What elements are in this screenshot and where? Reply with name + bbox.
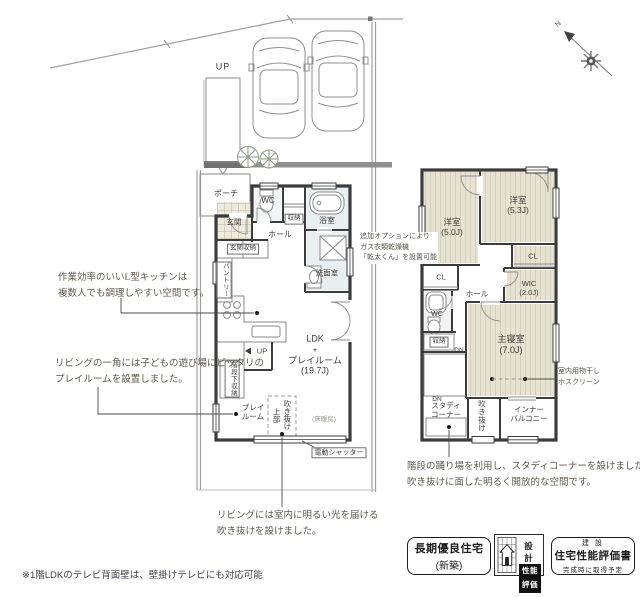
room-label-ldk: LDK + プレイルーム (19.7J)	[288, 333, 342, 376]
room-label-playroom: プレイ ルーム	[242, 403, 265, 421]
room-label-entrance: 玄関	[227, 218, 242, 227]
badge-design-eval-bottom: 性能評価	[519, 564, 541, 593]
room-label-stairs-up: UP	[257, 347, 267, 356]
badge-construction-line2: 住宅性能評価書	[555, 548, 632, 563]
room-label-wc-2f: WC	[431, 311, 443, 319]
room-label-hall-2f: ホール	[466, 290, 489, 299]
badge-design-evaluation: 設 計 性能評価	[494, 534, 544, 576]
room-label-void-upper: 吹き抜け 上部	[270, 400, 292, 430]
car-icon-2	[308, 31, 368, 131]
badge-construction-line1: 建 設	[582, 538, 604, 548]
room-label-cl2: CL	[528, 252, 538, 261]
stairs-2f	[424, 354, 466, 396]
tree-icon-2	[260, 150, 278, 168]
badge-design-eval-top: 設 計	[519, 537, 541, 564]
room-label-study-corner: スタディ コーナー	[431, 401, 461, 419]
washer-icon	[320, 236, 346, 260]
room-label-porch: ポーチ	[214, 189, 238, 199]
badge-long-term-line1: 長期優良住宅	[415, 540, 484, 556]
room-label-storage-2f: 収納	[430, 337, 449, 348]
badge-long-term-line2: (新築)	[436, 557, 463, 572]
note-hosclean: 室内用物干し ホスクリーン	[557, 367, 601, 388]
room-label-storage-1f: 収納	[285, 214, 304, 225]
car-icon-1	[249, 38, 309, 138]
bathtub-icon	[310, 192, 344, 214]
label-floor-heating: (床暖房)	[312, 416, 336, 424]
badge-construction-evaluation: 建 設 住宅性能評価書 完成時に取得予定	[551, 537, 635, 575]
room-label-hall-1f: ホール	[268, 230, 292, 240]
floorplan-page: UP N ポーチ 玄関 WC 収納 浴室 洗面室 ホール 玄関収納 パントリー …	[0, 0, 640, 597]
room-label-void-2f: 吹き抜け	[478, 400, 487, 432]
room-label-pantry: パントリー	[217, 262, 232, 299]
footnote-tv-wall: ※1階LDKのテレビ背面壁は、壁掛けテレビにも対応可能	[22, 567, 263, 581]
study-desk	[426, 418, 466, 436]
site-up-label: UP	[216, 62, 231, 73]
room-label-cl1: CL	[436, 273, 446, 282]
compass-icon	[564, 31, 612, 76]
note-kitchen: 作業効率のいいL型キッチンは 複数人でも調理しやすい空間です。	[58, 270, 209, 302]
room-label-inner-balcony: インナー バルコニー	[510, 405, 547, 423]
room-label-washroom: 洗面室	[316, 269, 339, 278]
room-label-bath: 浴室	[319, 216, 335, 226]
exterior-stairs	[206, 78, 240, 174]
note-void: リビングには室内に明るい光を届ける 吹き抜けを設けました。	[217, 508, 379, 540]
room-label-bedroom2: 洋室 (5.3J)	[507, 195, 529, 215]
badge-long-term-housing: 長期優良住宅 (新築)	[407, 537, 491, 575]
tree-icon-1	[238, 147, 259, 168]
note-study: 階段の踊り場を利用し、スタディコーナーを設けました。 吹き抜けに面した明るく開放…	[407, 459, 640, 491]
note-gas-dryer: 追加オプションにより ガス衣類乾燥機 「乾太くん」を設置可能	[359, 232, 438, 264]
room-label-bedroom1: 洋室 (5.0J)	[441, 217, 463, 237]
badge-construction-line3: 完成時に取得予定	[563, 564, 623, 574]
note-playroom: リビングの一角には子どもの遊び場にピッタリの プレイルームを設置しました。	[55, 356, 264, 388]
label-dn-1: DN	[454, 347, 463, 355]
room-label-wc-1f: WC	[261, 196, 274, 206]
room-label-entrance-storage: 玄関収納	[227, 244, 259, 255]
kitchen-counter	[217, 296, 286, 342]
design-eval-house-icon	[497, 537, 517, 573]
room-label-master: 主寝室 (7.0J)	[497, 334, 524, 356]
room-label-wic: WIC (2.0J)	[519, 279, 538, 297]
label-electric-shutter: 電動シャッター	[312, 447, 367, 458]
